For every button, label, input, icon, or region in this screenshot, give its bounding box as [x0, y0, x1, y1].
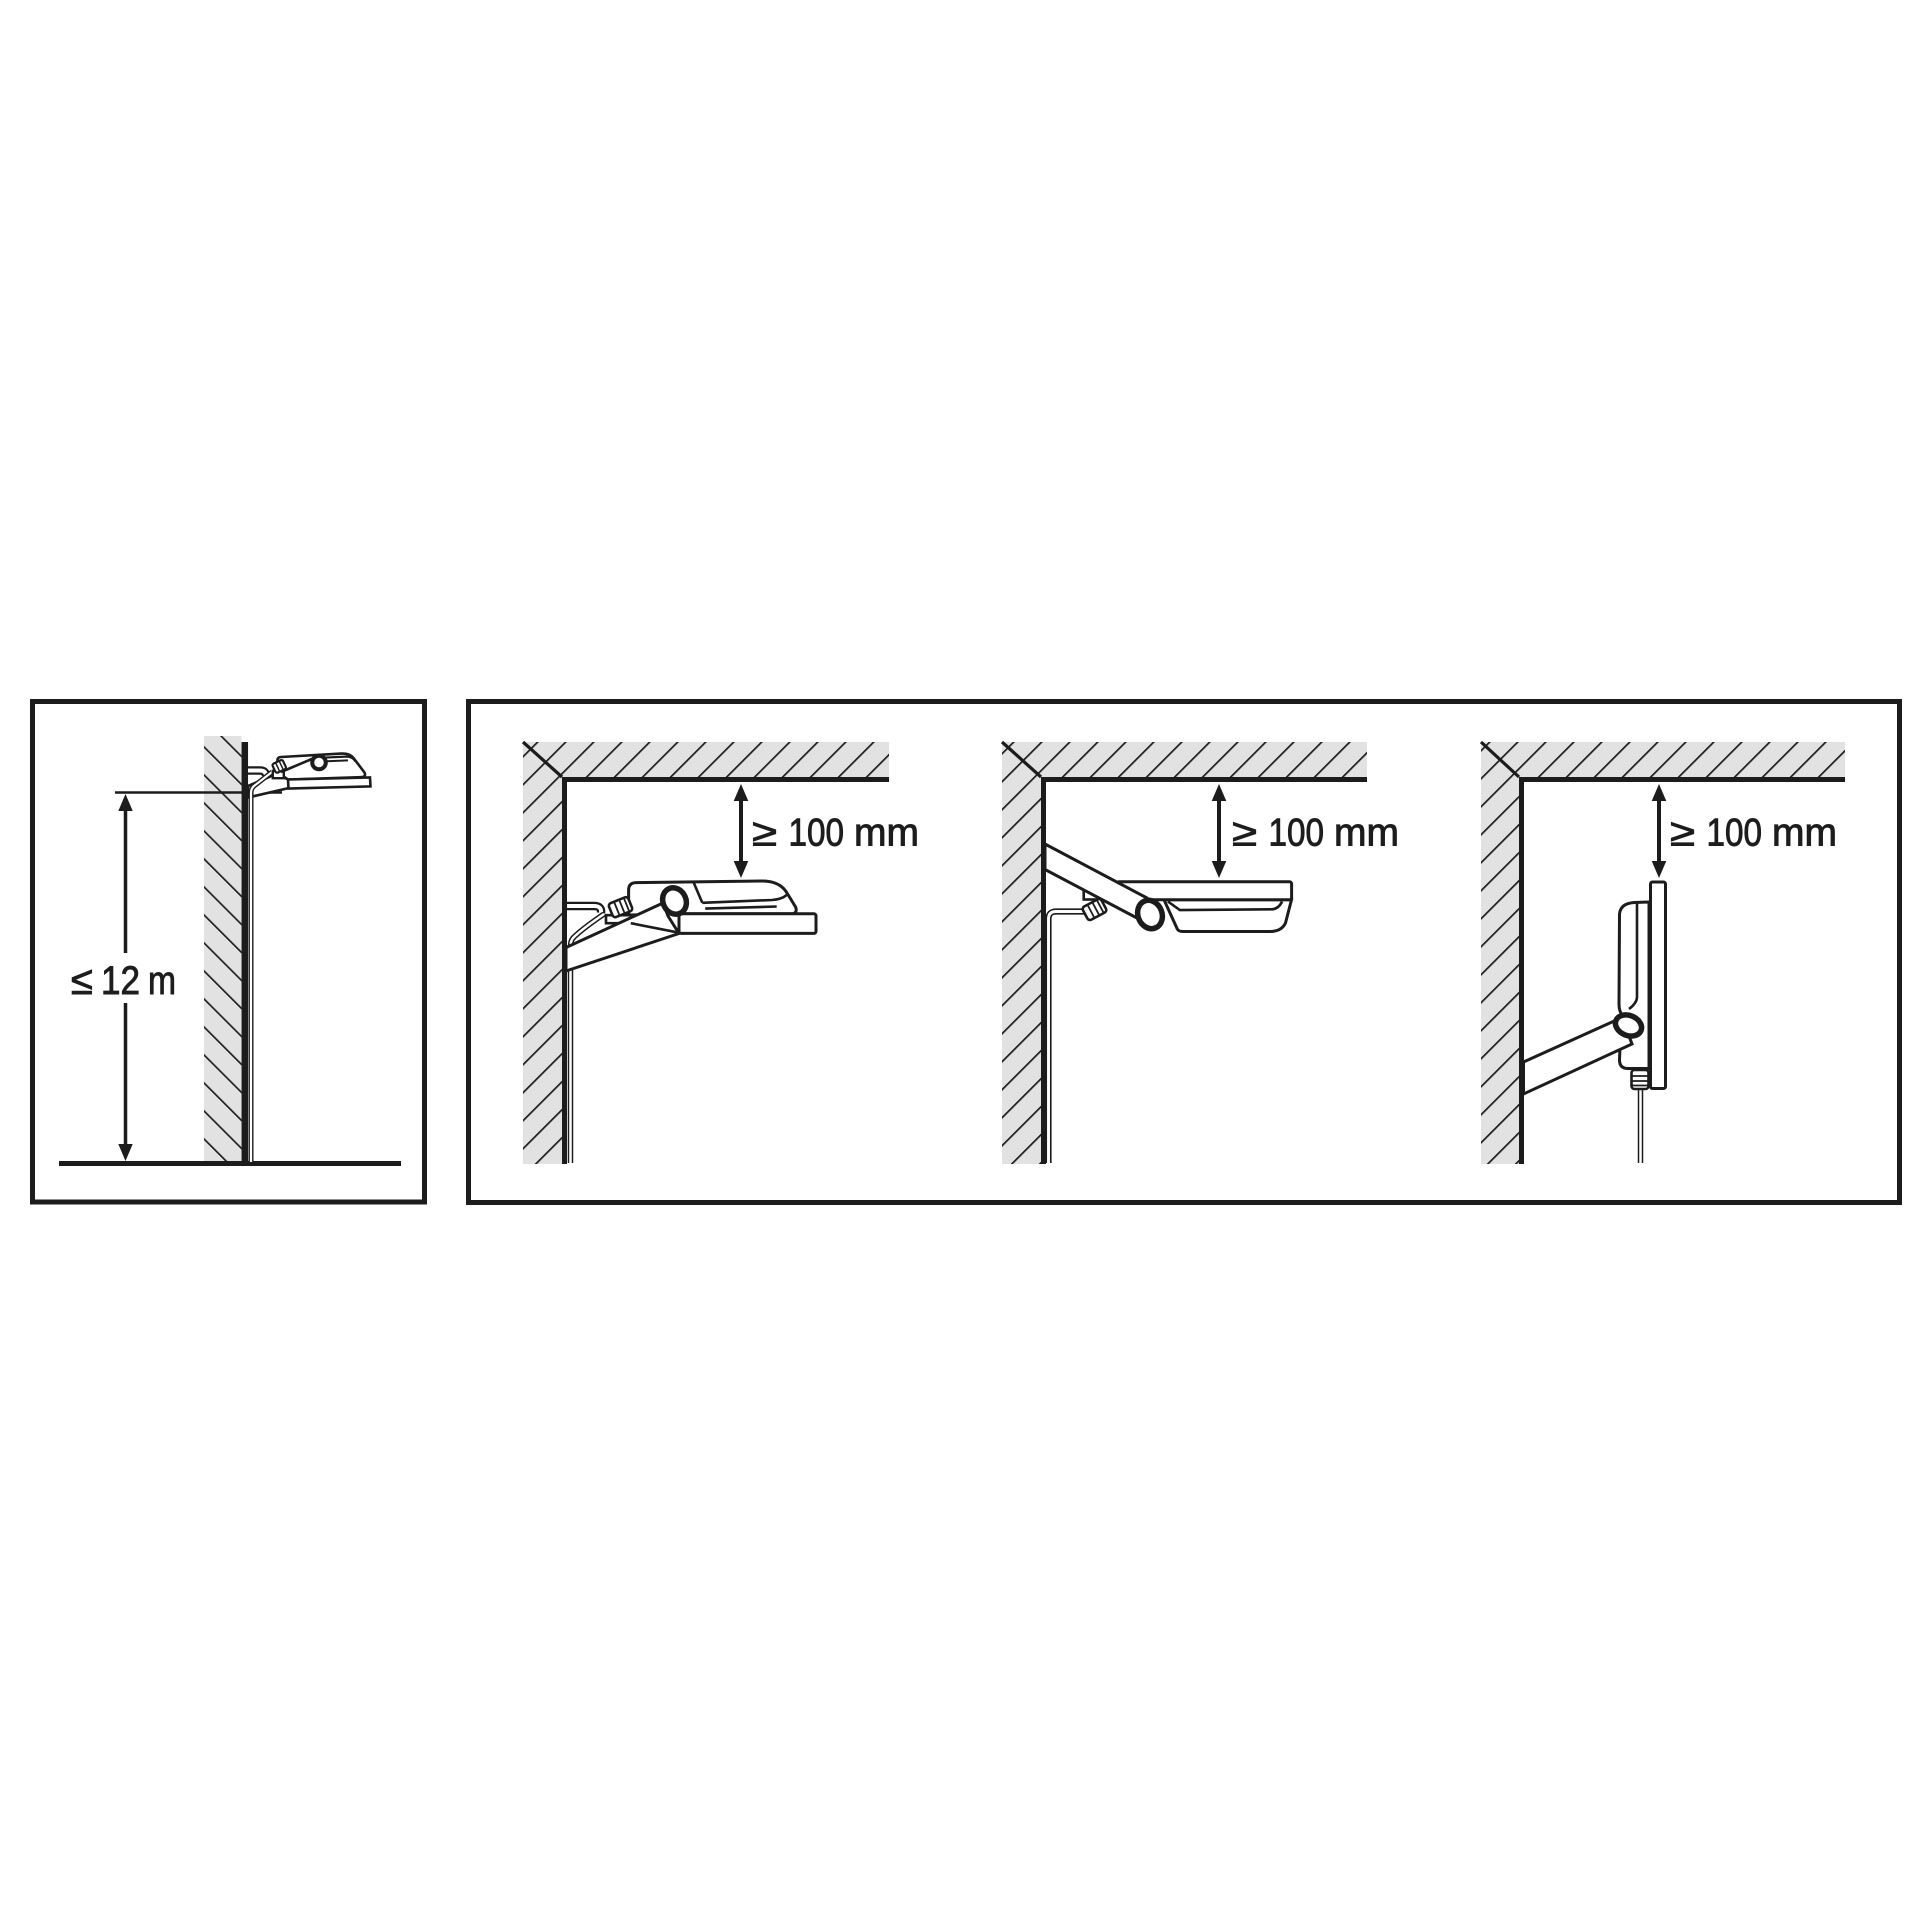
svg-text:≥100mm: ≥100mm: [1232, 812, 1399, 855]
svg-text:≤12m: ≤12m: [71, 959, 176, 1003]
svg-text:≥100mm: ≥100mm: [1670, 812, 1837, 855]
svg-text:≥100mm: ≥100mm: [752, 812, 919, 855]
